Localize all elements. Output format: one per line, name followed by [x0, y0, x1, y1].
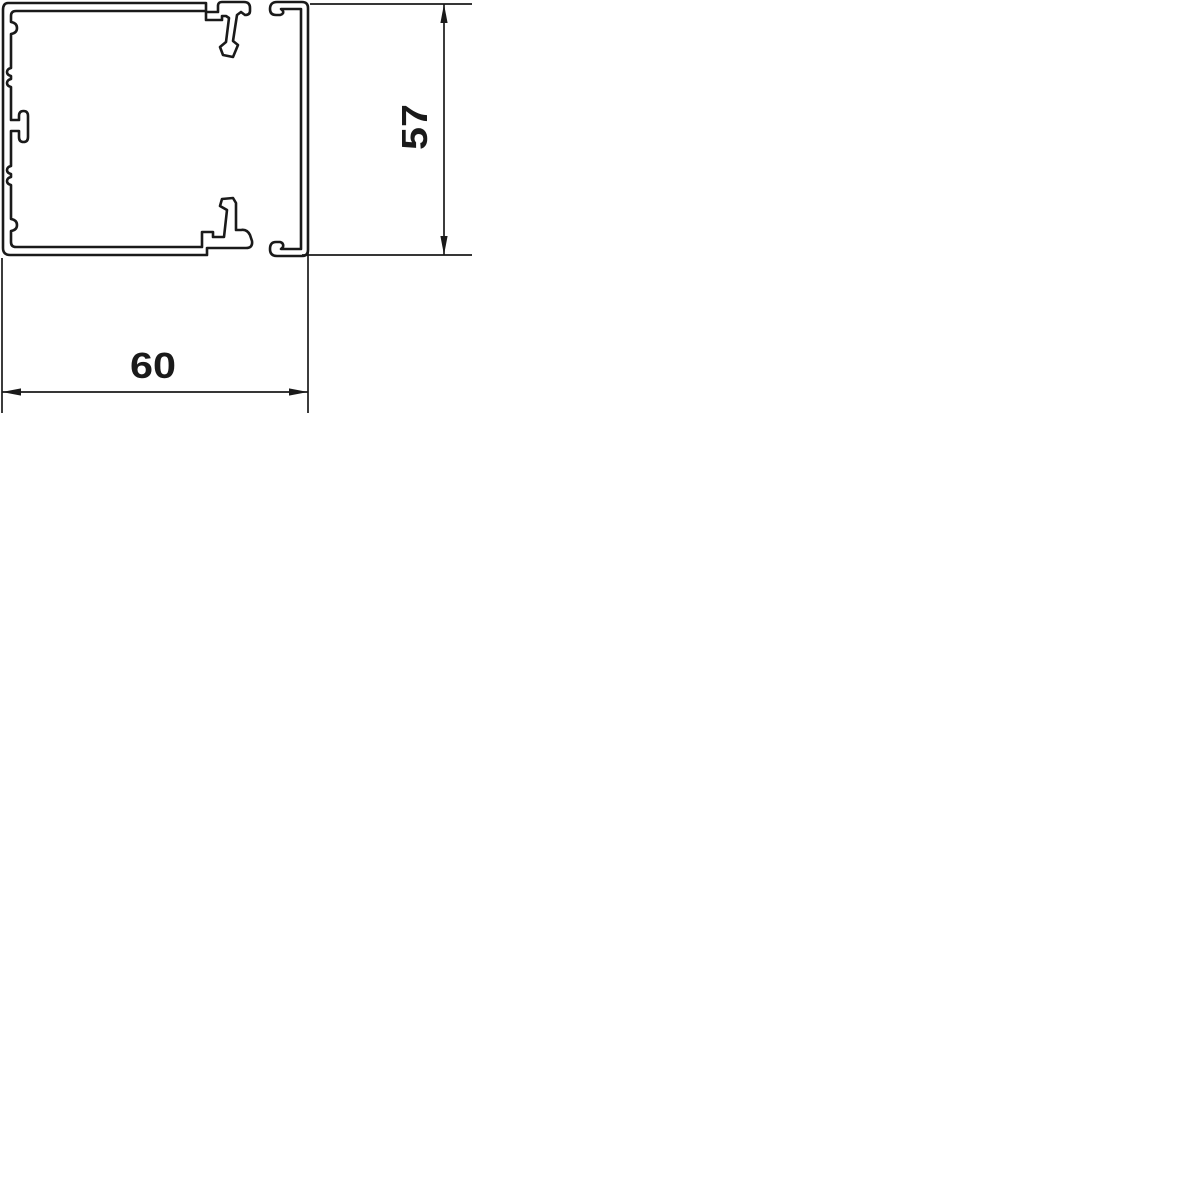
trunking-lid-profile: [270, 2, 308, 256]
width-dimension: 60: [2, 252, 308, 413]
arrowhead-down: [440, 236, 447, 255]
trunking-body-profile: [3, 2, 252, 255]
arrowhead-right: [289, 388, 308, 395]
width-dimension-label: 60: [130, 345, 176, 386]
technical-drawing: 57 60: [0, 0, 1200, 1200]
height-dimension: 57: [302, 4, 472, 255]
arrowhead-left: [2, 388, 21, 395]
drawing-canvas: 57 60: [0, 0, 1200, 1200]
height-dimension-label: 57: [394, 104, 435, 150]
arrowhead-up: [440, 4, 447, 23]
